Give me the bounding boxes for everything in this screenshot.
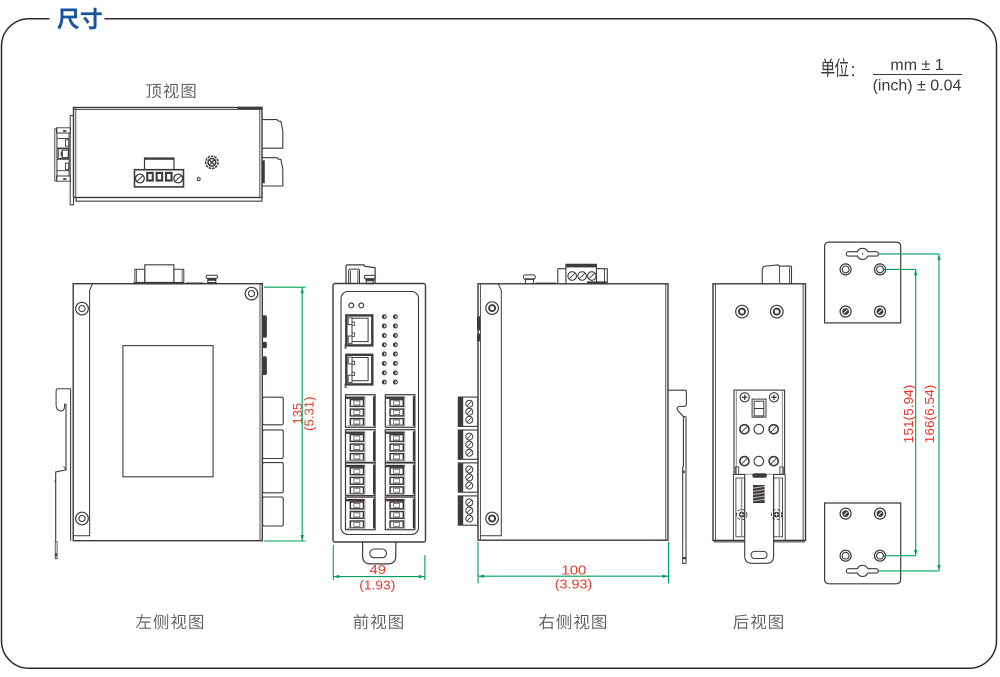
svg-text:mm ± 1: mm ± 1	[890, 57, 943, 74]
svg-text:(5.31): (5.31)	[302, 396, 317, 431]
svg-text:49: 49	[370, 562, 387, 577]
svg-text:100: 100	[561, 563, 586, 578]
svg-text:(inch) ± 0.04: (inch) ± 0.04	[873, 78, 962, 95]
svg-text:151(5.94): 151(5.94)	[901, 385, 916, 444]
svg-text:(1.93): (1.93)	[359, 577, 395, 592]
svg-text:166(6.54): 166(6.54)	[922, 385, 937, 444]
svg-text:(3.93): (3.93)	[555, 576, 593, 591]
svg-text::: :	[851, 60, 856, 80]
